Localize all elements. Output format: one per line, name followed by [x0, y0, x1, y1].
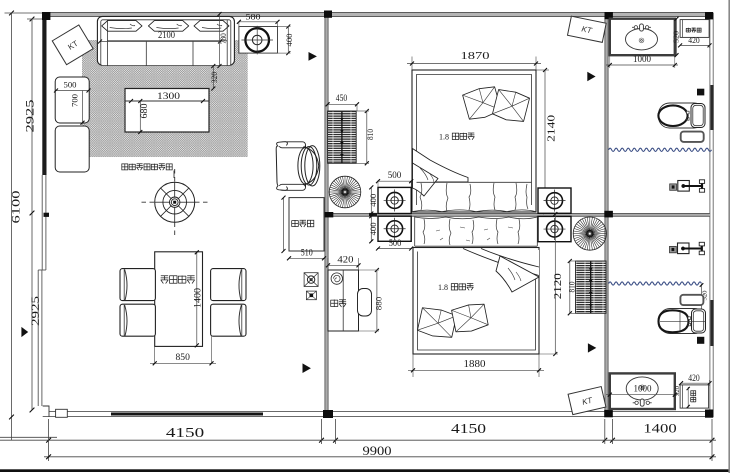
svg-text:510: 510	[301, 247, 313, 258]
svg-text:780: 780	[218, 33, 228, 44]
svg-text:580: 580	[246, 13, 261, 22]
svg-text:700: 700	[70, 94, 80, 107]
svg-text:850: 850	[176, 353, 191, 363]
svg-text:2140: 2140	[545, 115, 557, 142]
svg-text:1300: 1300	[157, 92, 180, 102]
svg-text:500: 500	[63, 80, 76, 90]
svg-text:400: 400	[284, 33, 294, 46]
svg-text:810: 810	[365, 129, 375, 140]
svg-text:450: 450	[336, 93, 347, 103]
svg-text:6100: 6100	[10, 191, 23, 224]
svg-text:500: 500	[389, 238, 402, 248]
svg-text:4150: 4150	[166, 425, 204, 440]
svg-text:1000: 1000	[634, 384, 653, 394]
svg-text:1400: 1400	[643, 422, 676, 436]
svg-text:1400: 1400	[194, 288, 203, 308]
svg-text:810: 810	[567, 281, 576, 292]
svg-text:500: 500	[388, 170, 402, 180]
svg-text:2100: 2100	[158, 30, 176, 40]
svg-text:520: 520	[672, 31, 681, 43]
svg-text:4150: 4150	[451, 422, 486, 437]
svg-text:2925: 2925	[24, 100, 37, 133]
svg-text:320: 320	[210, 72, 219, 83]
svg-text:1.8: 1.8	[438, 283, 448, 292]
svg-text:420: 420	[688, 373, 699, 383]
svg-text:880: 880	[374, 296, 384, 310]
svg-text:1.8: 1.8	[439, 133, 449, 142]
svg-text:2120: 2120	[552, 273, 563, 299]
svg-text:2925: 2925	[29, 296, 42, 326]
svg-text:420: 420	[688, 36, 700, 45]
svg-text:1880: 1880	[464, 359, 486, 369]
svg-text:9900: 9900	[362, 444, 391, 458]
svg-text:1000: 1000	[633, 54, 652, 64]
svg-text:680: 680	[140, 103, 149, 118]
svg-text:400: 400	[368, 194, 378, 207]
svg-text:400: 400	[368, 222, 378, 235]
svg-text:420: 420	[337, 255, 353, 265]
svg-text:1870: 1870	[461, 50, 490, 61]
